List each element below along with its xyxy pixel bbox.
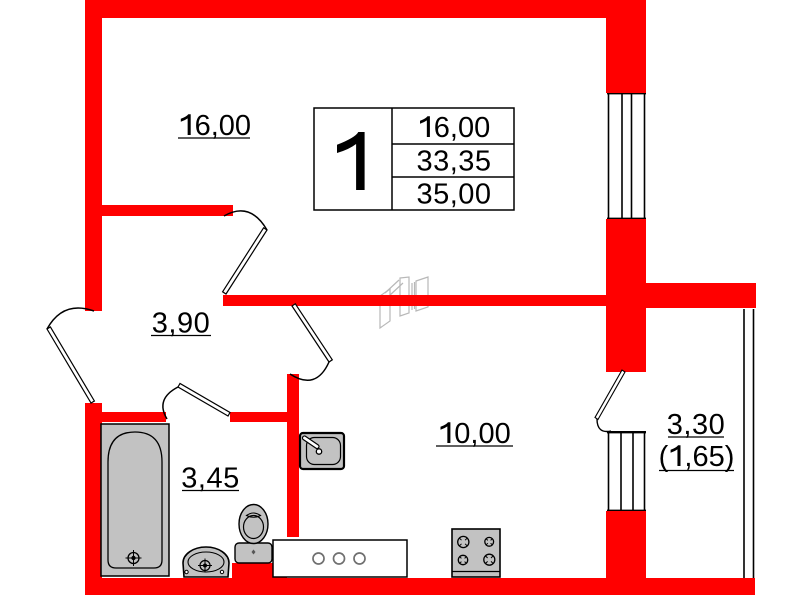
svg-text:33,35: 33,35 [416, 146, 491, 178]
svg-text:35,00: 35,00 [416, 179, 491, 211]
svg-text:3,45: 3,45 [181, 463, 239, 495]
svg-text:,65): ,65) [684, 441, 734, 473]
svg-text:0,00: 0,00 [454, 418, 510, 450]
svg-text:6,00: 6,00 [195, 110, 251, 142]
svg-text:(: ( [659, 441, 669, 473]
svg-text:3,90: 3,90 [152, 308, 210, 340]
svg-text:3,30: 3,30 [667, 409, 725, 441]
svg-text:6,00: 6,00 [434, 112, 490, 144]
